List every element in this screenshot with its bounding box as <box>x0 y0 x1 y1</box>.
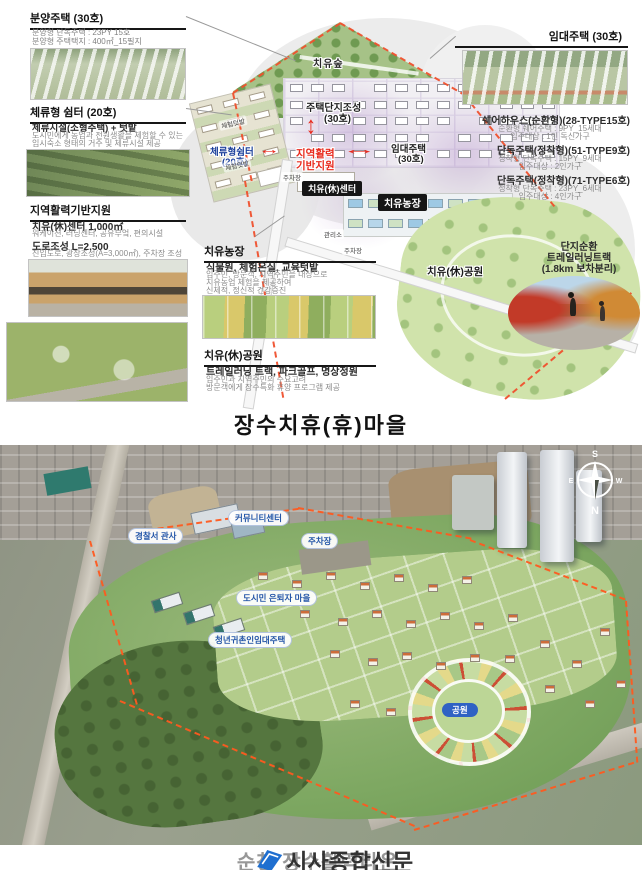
label-youth-rental: 청년귀촌인임대주택 <box>208 632 292 648</box>
decorative-block <box>249 91 266 102</box>
decorative-block <box>290 84 303 92</box>
trail-track-label: (1.8km 보차분리) <box>520 260 638 275</box>
decorative-block <box>462 576 472 584</box>
label-parking: 주차장 <box>301 533 338 549</box>
decorative-block <box>258 128 275 139</box>
decorative-block <box>616 680 626 688</box>
decorative-block <box>388 219 403 228</box>
decorative-block <box>437 117 450 125</box>
svg-text:W: W <box>616 478 623 485</box>
decorative-block <box>505 655 515 663</box>
decorative-block <box>474 622 484 630</box>
decorative-block <box>215 178 232 189</box>
map-label-support-2: 기반지원 <box>296 158 335 173</box>
healing-center-badge: 치유(休)센터 <box>302 181 362 196</box>
decorative-block <box>545 685 555 693</box>
decorative-block <box>428 199 443 208</box>
page: 치유숲 주택단지조성 (30호) 임대주택 (30호) 체류형쉼터 (20호) … <box>0 0 642 870</box>
map-label-office: 관리소 <box>322 229 344 239</box>
arrow-horizontal-icon: ↔ <box>258 142 280 156</box>
callout-title-rental-housing: 임대주택 (30호) <box>455 28 628 48</box>
callout-item-desc: 진입도로, 광장조성(A=3,000㎡), 주차장 조성 <box>32 249 182 259</box>
runner-figure <box>600 306 605 321</box>
decorative-block <box>311 84 324 92</box>
decorative-block <box>253 110 270 121</box>
decorative-block <box>368 219 383 228</box>
callout-line: 분양형 주택택지 : 400㎡_15필지 <box>32 37 142 47</box>
map-label-forest: 치유숲 <box>313 55 344 70</box>
map-label-housing-count: (30호) <box>324 110 351 125</box>
apartment-tower <box>452 475 494 530</box>
callout-desc: 방문객에게 장수특화 휴양 프로그램 제공 <box>206 383 340 393</box>
arrow-horizontal-icon: ↔ <box>341 142 377 156</box>
decorative-block <box>372 610 382 618</box>
decorative-block <box>290 117 303 125</box>
svg-text:N: N <box>591 505 599 517</box>
photo-trail-runners <box>508 276 640 350</box>
map-label-park: 치유(休)공원 <box>427 264 483 279</box>
runner-figure <box>599 301 604 306</box>
decorative-block <box>394 574 404 582</box>
decorative-block <box>292 580 302 588</box>
decorative-block <box>330 650 340 658</box>
map-label-parking: 주차장 <box>281 172 303 182</box>
arrow-vertical-icon: ↕ <box>306 114 316 139</box>
decorative-block <box>508 614 518 622</box>
callout-desc: 입주대상 : 1인 독신가구 <box>470 132 630 142</box>
decorative-block <box>600 628 610 636</box>
decorative-block <box>540 640 550 648</box>
decorative-block <box>332 84 345 92</box>
decorative-block <box>348 219 363 228</box>
decorative-block <box>470 654 480 662</box>
map-label-rental-count: (30호) <box>398 151 424 165</box>
caption-bar: 순창 장수활력타운 시사종합신문 <box>0 845 642 870</box>
decorative-block <box>585 700 595 708</box>
photo-sale-housing <box>30 48 186 100</box>
decorative-block <box>416 84 429 92</box>
runner-figure <box>568 292 574 298</box>
masterplan-infographic: 치유숲 주택단지조성 (30호) 임대주택 (30호) 체류형쉼터 (20호) … <box>0 0 642 435</box>
newspaper-logo-text: 시사종합신문 <box>286 843 413 870</box>
decorative-block <box>436 662 446 670</box>
decorative-block <box>348 199 363 208</box>
decorative-block <box>437 101 450 109</box>
decorative-block <box>300 610 310 618</box>
decorative-block <box>360 582 370 590</box>
decorative-block <box>290 101 303 109</box>
page-title: 장수치휴(휴)마을 <box>0 408 642 440</box>
compass-icon: S N E W <box>566 447 624 517</box>
newspaper-logo: 시사종합신문 <box>254 843 413 870</box>
decorative-block <box>402 652 412 660</box>
decorative-block <box>326 572 336 580</box>
label-park: 공원 <box>442 703 478 717</box>
label-retiree-village: 도시민 은퇴자 마을 <box>236 590 317 606</box>
photo-healing-center <box>28 259 188 317</box>
decorative-block <box>338 618 348 626</box>
decorative-block <box>374 84 387 92</box>
callout-title-sale-housing: 분양주택 (30호) <box>30 10 186 30</box>
connector-line <box>186 16 296 61</box>
decorative-block <box>416 101 429 109</box>
photo-stay-shelter <box>26 149 190 197</box>
label-police-quarters: 경찰서 관사 <box>128 528 183 544</box>
svg-text:E: E <box>569 478 574 485</box>
decorative-block <box>406 620 416 628</box>
healing-farm-badge: 치유농장 <box>378 194 427 211</box>
decorative-block <box>416 117 429 125</box>
callout-desc: 입주대상 : 2인가구 <box>470 162 630 172</box>
newspaper-logo-icon <box>254 848 284 870</box>
decorative-block <box>353 117 366 125</box>
decorative-block <box>374 101 387 109</box>
decorative-block <box>350 700 360 708</box>
decorative-block <box>437 150 450 158</box>
aerial-photo: 경찰서 관사 커뮤니티센터 주차장 도시민 은퇴자 마을 청년귀촌인임대주택 공… <box>0 445 642 845</box>
decorative-block <box>572 660 582 668</box>
decorative-block <box>201 123 218 134</box>
callout-desc: 임시숙소 형태의 거주 및 체류시설 제공 <box>32 139 161 149</box>
runner-figure <box>570 298 576 316</box>
decorative-block <box>440 612 450 620</box>
callout-desc: 입주대상 : 4인가구 <box>470 192 630 202</box>
apartment-tower <box>497 452 527 548</box>
decorative-block <box>395 84 408 92</box>
decorative-block <box>386 708 396 716</box>
decorative-block <box>258 572 268 580</box>
photo-healing-farm <box>202 295 376 339</box>
decorative-block <box>395 101 408 109</box>
decorative-block <box>428 584 438 592</box>
decorative-block <box>374 117 387 125</box>
photo-park-golf <box>6 322 188 402</box>
decorative-block <box>368 658 378 666</box>
decorative-block <box>395 117 408 125</box>
label-community-center: 커뮤니티센터 <box>228 510 289 526</box>
svg-text:S: S <box>592 449 598 459</box>
photo-rental-housing <box>462 50 628 105</box>
